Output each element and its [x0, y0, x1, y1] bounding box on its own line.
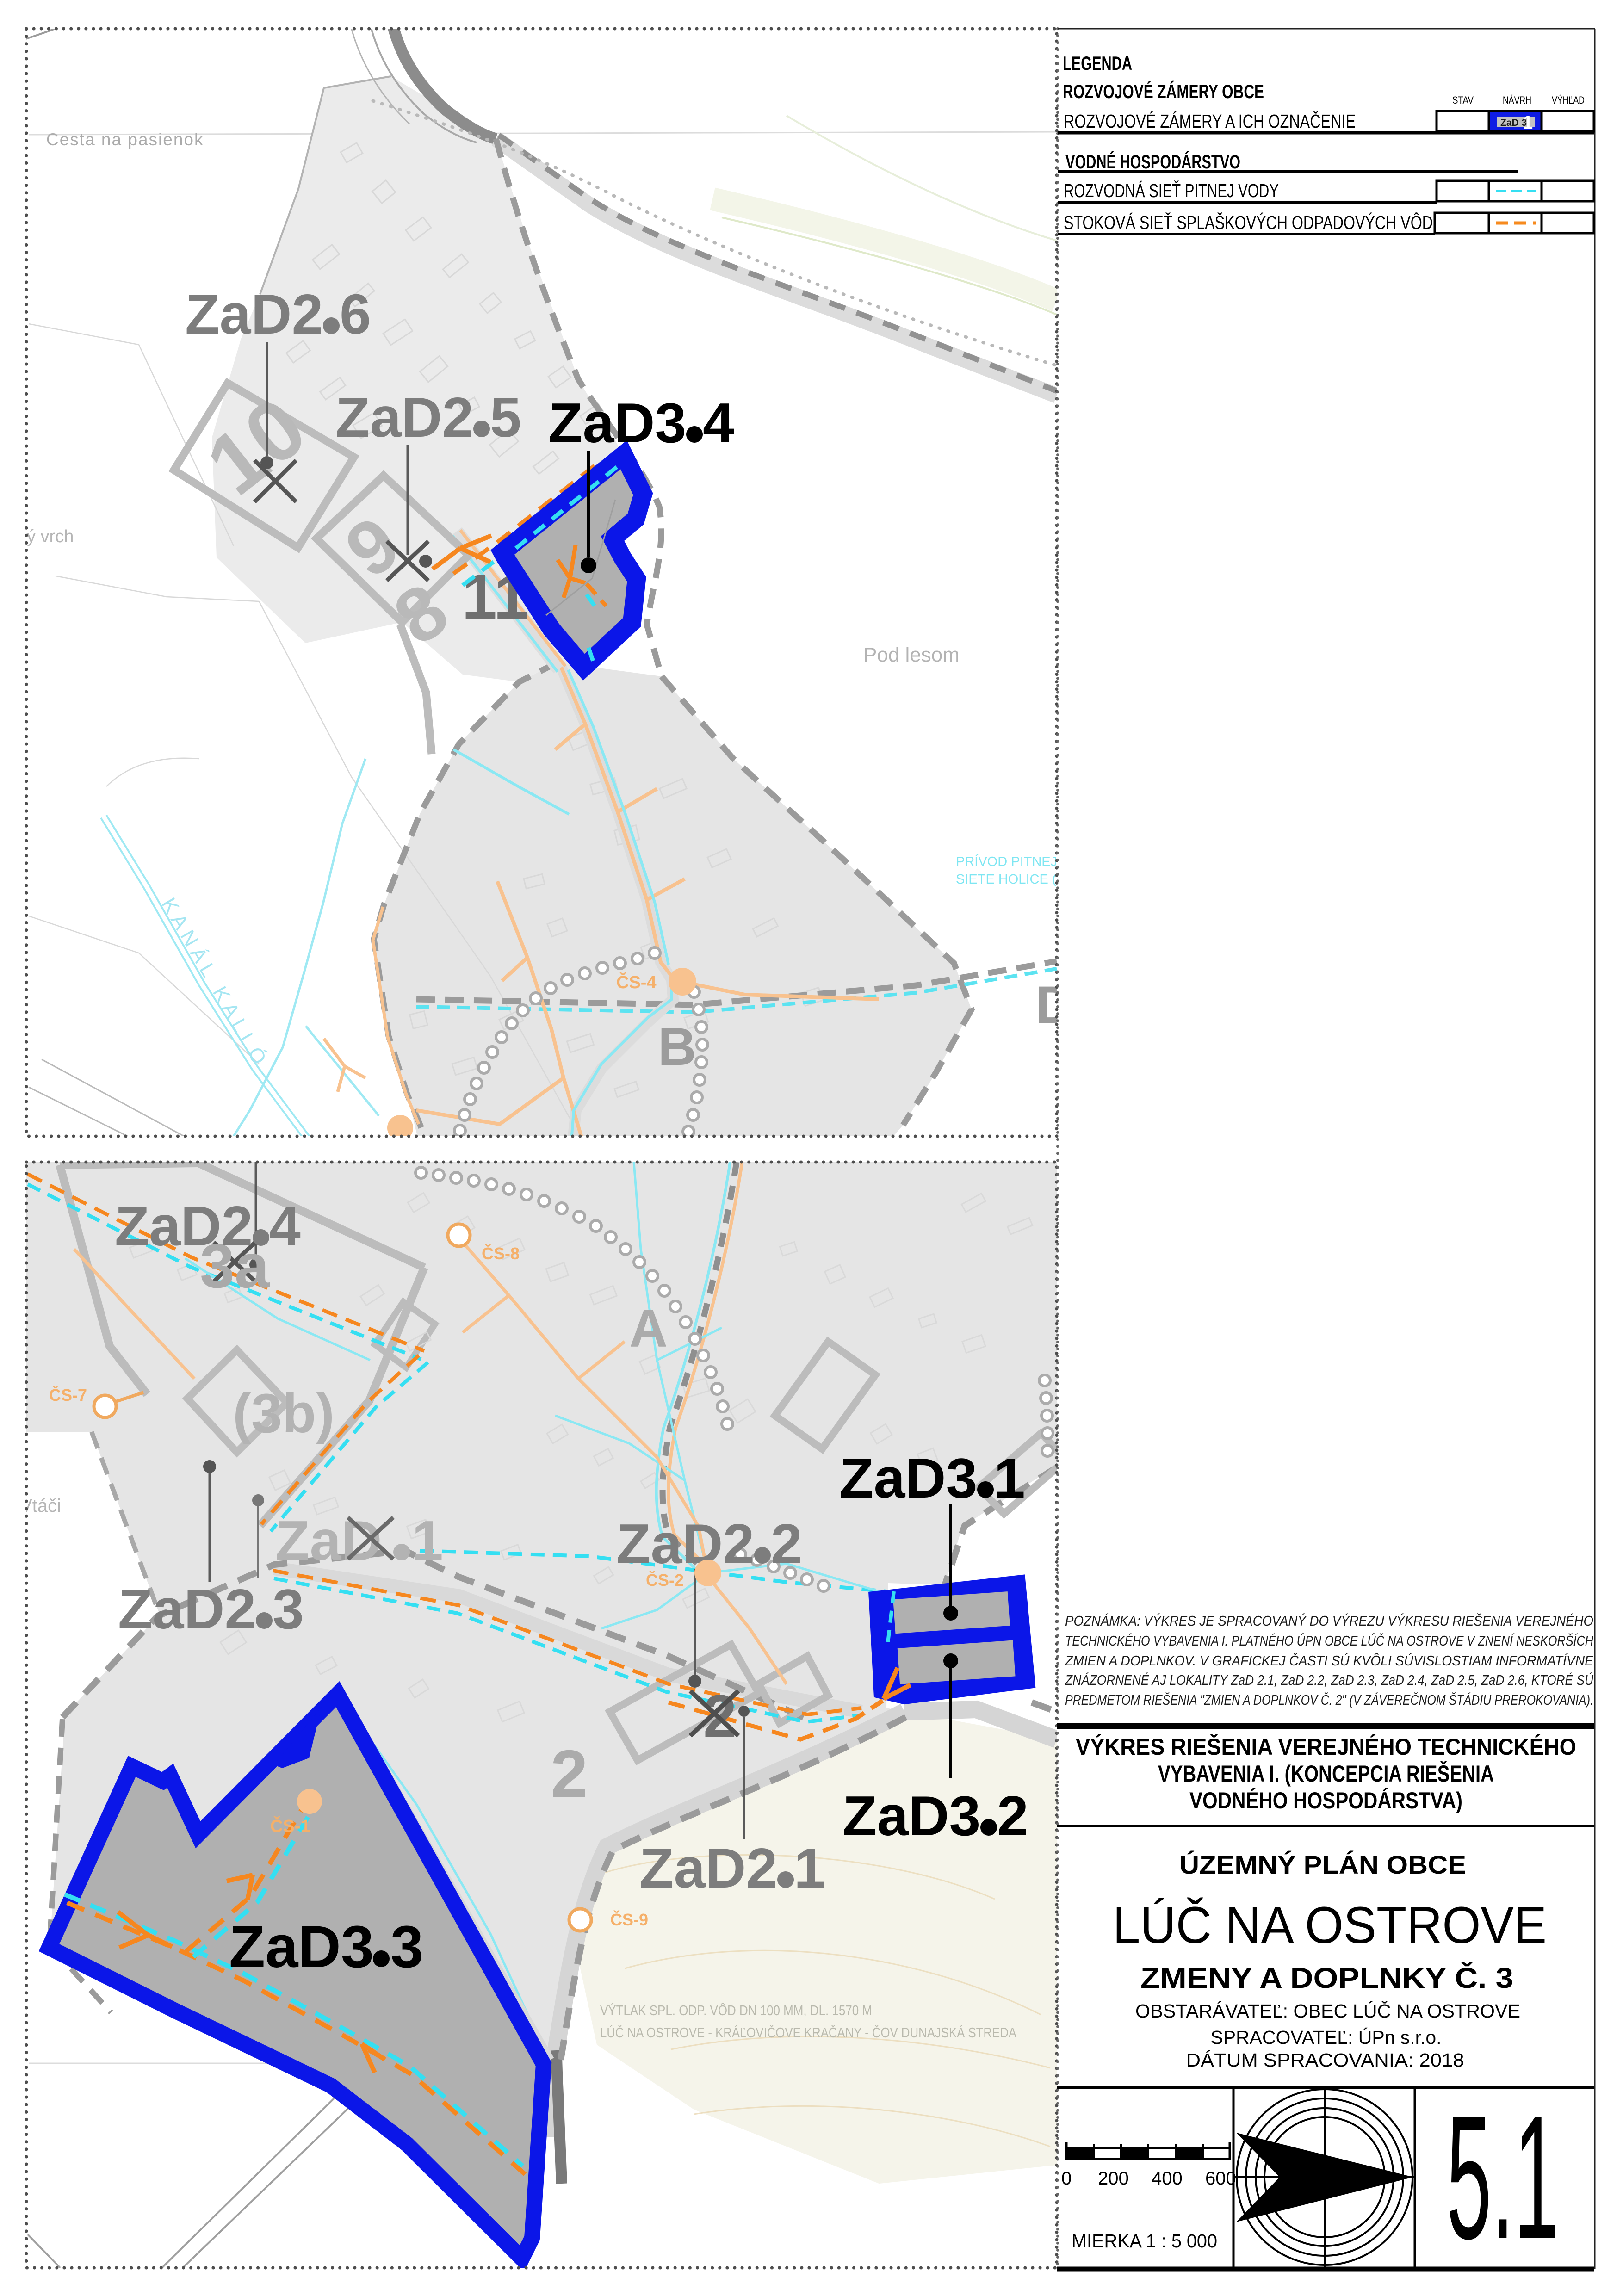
- svg-text:VÝHĽAD: VÝHĽAD: [1552, 94, 1585, 106]
- svg-text:1: 1: [994, 1447, 1025, 1510]
- svg-text:6: 6: [340, 283, 371, 346]
- svg-text:VODNÉ HOSPODÁRSTVO: VODNÉ HOSPODÁRSTVO: [1065, 151, 1240, 173]
- svg-text:ZaD3: ZaD3: [229, 1914, 374, 1980]
- svg-text:ZNÁZORNENÉ AJ LOKALITY ZaD: ZNÁZORNENÉ AJ LOKALITY ZaD 2.1, ZaD 2.2,…: [1065, 1672, 1593, 1688]
- svg-text:Cesta na pasienok: Cesta na pasienok: [46, 130, 204, 149]
- svg-text:3: 3: [390, 1914, 423, 1980]
- svg-text:ROZVODNÁ SIEŤ PITNEJ VODY: ROZVODNÁ SIEŤ PITNEJ VODY: [1064, 180, 1279, 201]
- svg-text:ZaD3: ZaD3: [548, 391, 686, 454]
- svg-text:ZaD2: ZaD2: [115, 1194, 253, 1257]
- svg-text:NÁVRH: NÁVRH: [1503, 94, 1531, 106]
- svg-text:5.1: 5.1: [1447, 2079, 1559, 2276]
- svg-text:600: 600: [1205, 2168, 1236, 2189]
- svg-text:VODNÉHO HOSPODÁRSTVA): VODNÉHO HOSPODÁRSTVA): [1189, 1788, 1462, 1813]
- svg-text:ZaD2: ZaD2: [118, 1578, 256, 1640]
- svg-text:1: 1: [1523, 112, 1533, 133]
- svg-text:DÁTUM SPRACOVANIA: 2018: DÁTUM SPRACOVANIA: 2018: [1186, 2049, 1464, 2071]
- svg-text:STAV: STAV: [1452, 94, 1474, 106]
- svg-text:VÝTLAK SPL. ODP. VÔD DN 100 MM: VÝTLAK SPL. ODP. VÔD DN 100 MM, DL. 1570…: [600, 2002, 872, 2018]
- svg-text:LÚČ NA OSTROVE - KRÁĽOVIČOVE K: LÚČ NA OSTROVE - KRÁĽOVIČOVE KRAČANY - Č…: [600, 2024, 1016, 2041]
- svg-text:ZaD3: ZaD3: [839, 1447, 977, 1510]
- svg-text:MIERKA 1 : 5 000: MIERKA 1 : 5 000: [1072, 2230, 1217, 2252]
- svg-text:ZaD2: ZaD2: [616, 1512, 754, 1575]
- svg-text:SPRACOVATEĽ: ÚPn s.r.o.: SPRACOVATEĽ: ÚPn s.r.o.: [1211, 2027, 1442, 2048]
- svg-text:0: 0: [1061, 2168, 1072, 2189]
- svg-text:ZaD2: ZaD2: [335, 386, 473, 449]
- svg-text:ZaD3: ZaD3: [842, 1784, 980, 1847]
- svg-text:ČS-7: ČS-7: [49, 1385, 87, 1405]
- svg-text:4: 4: [703, 391, 734, 454]
- svg-text:PREDMETOM RIEŠENIA "ZMIEN A: PREDMETOM RIEŠENIA "ZMIEN A DOPLNKOV Č. …: [1065, 1692, 1593, 1708]
- svg-text:VÝKRES RIEŠENIA VEREJNÉHO TECH: VÝKRES RIEŠENIA VEREJNÉHO TECHNICKÉHO: [1076, 1733, 1576, 1760]
- svg-text:2: 2: [551, 1736, 588, 1811]
- svg-text:B: B: [658, 1017, 696, 1077]
- svg-text:LEGENDA: LEGENDA: [1063, 52, 1132, 74]
- svg-text:(3b): (3b): [233, 1382, 335, 1444]
- svg-text:ZaD2: ZaD2: [639, 1837, 777, 1900]
- svg-text:ÚZEMNÝ PLÁN OBCE: ÚZEMNÝ PLÁN OBCE: [1179, 1850, 1466, 1879]
- svg-text:200: 200: [1098, 2168, 1129, 2189]
- svg-text:PRÍVOD PITNEJ V: PRÍVOD PITNEJ V: [956, 854, 1070, 869]
- svg-text:1: 1: [794, 1837, 825, 1900]
- svg-text:ROZVOJOVÉ ZÁMERY A ICH OZNAČEN: ROZVOJOVÉ ZÁMERY A ICH OZNAČENIE: [1064, 111, 1356, 132]
- svg-text:4: 4: [269, 1194, 301, 1257]
- svg-text:1: 1: [412, 1509, 443, 1572]
- svg-text:ČS-8: ČS-8: [482, 1244, 520, 1263]
- svg-text:ZMIEN A DOPLNKOV. V GR: ZMIEN A DOPLNKOV. V GRAFICKEJ ČASTI SÚ K…: [1065, 1652, 1593, 1669]
- svg-text:ČS-4: ČS-4: [616, 972, 657, 992]
- svg-text:STOKOVÁ SIEŤ SPLAŠKOVÝCH ODPAD: STOKOVÁ SIEŤ SPLAŠKOVÝCH ODPADOVÝCH VÔD: [1064, 212, 1433, 233]
- svg-text:LÚČ NA OSTROVE: LÚČ NA OSTROVE: [1113, 1896, 1547, 1954]
- svg-text:VYBAVENIA I. (KONCEPCIA RIEŠEN: VYBAVENIA I. (KONCEPCIA RIEŠENIA: [1158, 1760, 1494, 1787]
- svg-text:A: A: [629, 1299, 668, 1358]
- svg-text:ČS-2: ČS-2: [646, 1570, 684, 1590]
- svg-text:2: 2: [997, 1784, 1028, 1847]
- svg-text:5: 5: [490, 386, 521, 449]
- svg-text:ZaD2: ZaD2: [185, 283, 323, 346]
- svg-text:ZMENY A DOPLNKY Č. 3: ZMENY A DOPLNKY Č. 3: [1140, 1962, 1513, 1994]
- svg-text:2: 2: [771, 1512, 802, 1575]
- svg-text:POZNÁMKA: VÝKRES JE SPRACO: POZNÁMKA: VÝKRES JE SPRACOVANÝ DO VÝREZU…: [1065, 1613, 1593, 1629]
- svg-text:400: 400: [1152, 2168, 1183, 2189]
- svg-text:Pod lesom: Pod lesom: [863, 644, 960, 666]
- svg-text:OBSTARÁVATEĽ: OBEC LÚČ NA OSTR: OBSTARÁVATEĽ: OBEC LÚČ NA OSTROVE: [1135, 2000, 1520, 2022]
- svg-text:3: 3: [273, 1578, 304, 1640]
- svg-text:ČS-9: ČS-9: [610, 1910, 648, 1929]
- svg-text:ČS-1: ČS-1: [270, 1815, 310, 1836]
- svg-text:ý vrch: ý vrch: [27, 527, 74, 546]
- svg-text:TECHNICKÉHO VYBAVENIA I. PL: TECHNICKÉHO VYBAVENIA I. PLATNÉHO ÚPN OB…: [1065, 1633, 1593, 1649]
- svg-text:ROZVOJOVÉ ZÁMERY OBCE: ROZVOJOVÉ ZÁMERY OBCE: [1063, 80, 1264, 102]
